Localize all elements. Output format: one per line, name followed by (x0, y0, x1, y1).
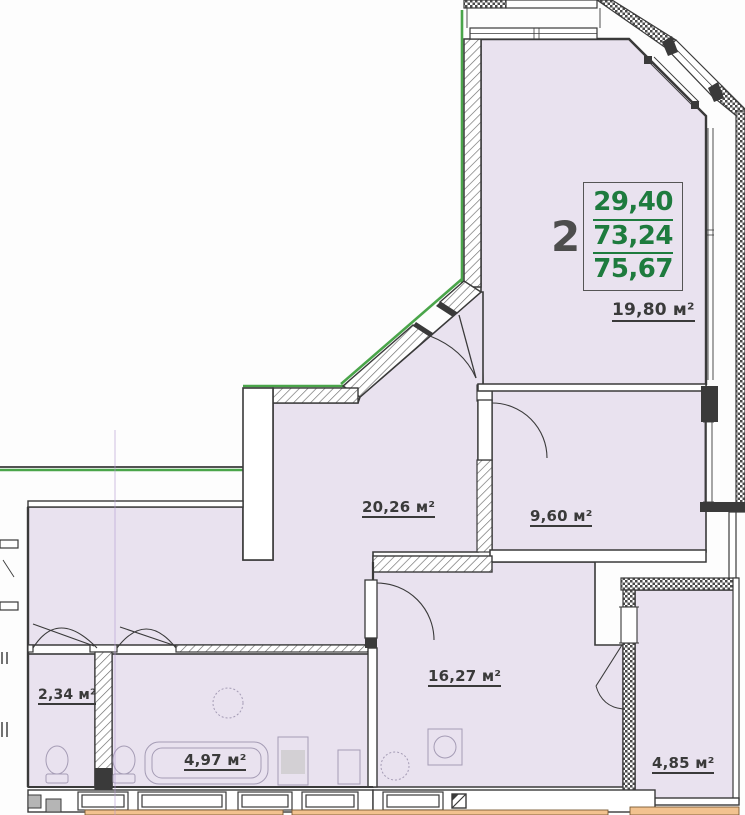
room-label-storage: 4,85 м² (652, 756, 714, 774)
legend-value-total: 73,24 (593, 221, 673, 255)
room-label-wc: 2,34 м² (38, 688, 96, 705)
room-label-hall: 20,26 м² (362, 500, 435, 518)
rooms-count: 2 (551, 212, 580, 261)
floor-plan-page: 2 29,40 73,24 75,67 19,80 м² 20,26 м² 9,… (0, 0, 745, 815)
bottom-window-band (28, 790, 655, 812)
room-label-bathroom: 4,97 м² (184, 753, 246, 771)
chamfer-window-mid-line (671, 44, 717, 91)
floor-plan-drawing (0, 0, 745, 815)
legend-value-overall: 75,67 (593, 254, 673, 286)
legend-values-box: 29,40 73,24 75,67 (583, 182, 683, 291)
room-label-bedroom: 9,60 м² (530, 509, 592, 527)
vent-shaft-icon (452, 794, 466, 808)
room-label-kitchen: 16,27 м² (428, 669, 501, 687)
wc-floor (28, 654, 95, 787)
room-label-living-room: 19,80 м² (612, 302, 695, 322)
legend-value-living: 29,40 (593, 187, 673, 221)
apartment-legend: 2 29,40 73,24 75,67 (551, 182, 683, 291)
bedroom-floor (492, 390, 706, 552)
